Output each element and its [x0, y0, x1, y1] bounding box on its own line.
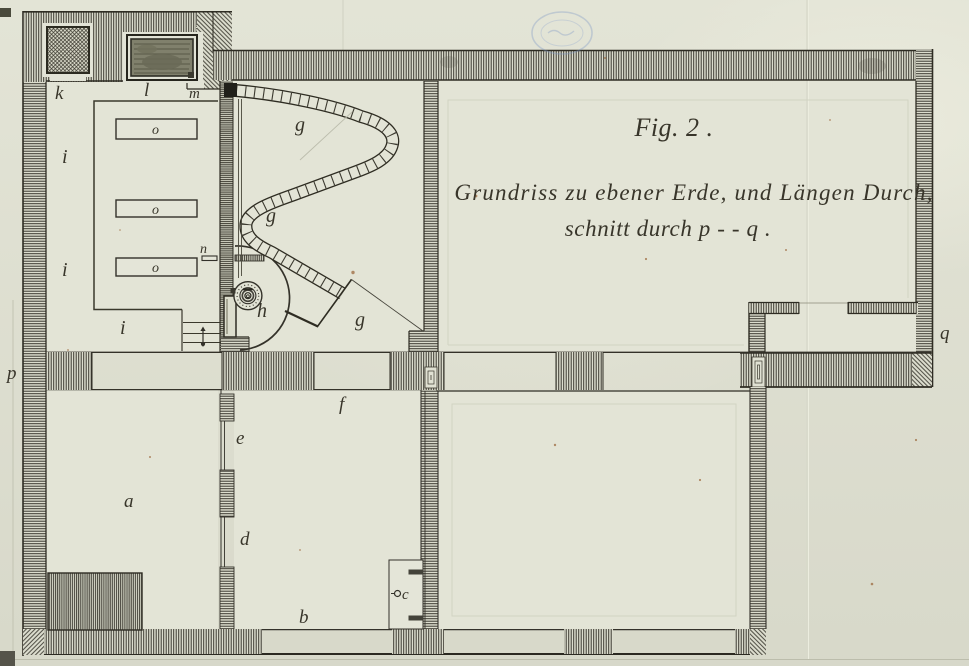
- svg-text:n: n: [200, 242, 207, 257]
- svg-text:e: e: [236, 428, 244, 449]
- svg-text:o: o: [152, 203, 159, 218]
- svg-text:m: m: [189, 86, 200, 102]
- svg-text:g: g: [295, 114, 305, 136]
- svg-text:i: i: [62, 146, 68, 168]
- svg-text:l: l: [144, 80, 149, 101]
- svg-text:Fig. 2 .: Fig. 2 .: [633, 113, 713, 142]
- svg-text:a: a: [124, 491, 134, 512]
- svg-text:i: i: [120, 317, 126, 339]
- svg-text:p: p: [5, 363, 17, 384]
- svg-text:schnitt durch p - - q .: schnitt durch p - - q .: [565, 216, 772, 241]
- svg-text:c: c: [402, 587, 409, 603]
- svg-text:d: d: [240, 529, 250, 550]
- svg-text:q: q: [940, 323, 950, 344]
- svg-text:Grundriss zu ebener Erde, und: Grundriss zu ebener Erde, und Längen Dur…: [454, 180, 933, 205]
- svg-text:o: o: [152, 261, 159, 276]
- svg-text:g: g: [266, 205, 276, 227]
- svg-text:i: i: [62, 259, 68, 281]
- svg-text:g: g: [355, 309, 365, 331]
- svg-text:o: o: [152, 123, 159, 138]
- svg-text:k: k: [55, 83, 64, 104]
- svg-text:h: h: [257, 300, 267, 322]
- svg-text:b: b: [299, 607, 309, 628]
